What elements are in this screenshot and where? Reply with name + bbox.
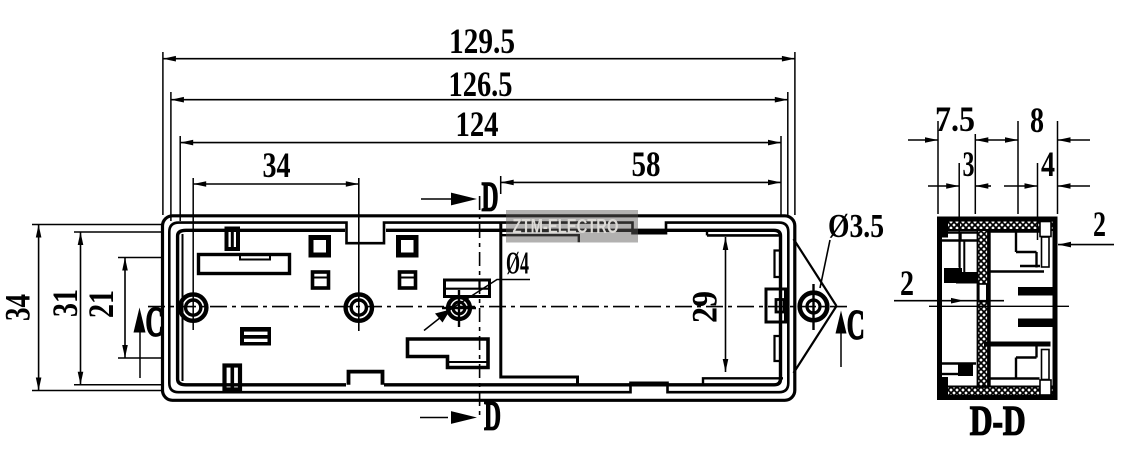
svg-text:7.5: 7.5 (935, 99, 975, 139)
svg-text:ZTM-ELECTRO: ZTM-ELECTRO (513, 216, 619, 238)
svg-text:D: D (484, 394, 501, 440)
svg-text:29: 29 (685, 291, 725, 323)
svg-text:D: D (482, 175, 499, 221)
svg-text:58: 58 (632, 144, 661, 184)
svg-text:124: 124 (456, 104, 499, 144)
svg-text:Ø3.5: Ø3.5 (828, 208, 884, 245)
svg-text:3: 3 (963, 144, 975, 184)
svg-text:129.5: 129.5 (449, 21, 515, 61)
svg-text:31: 31 (45, 289, 85, 317)
svg-text:4: 4 (1041, 144, 1055, 184)
svg-text:D-D: D-D (970, 399, 1026, 445)
svg-text:2: 2 (1093, 204, 1106, 244)
svg-text:C: C (146, 300, 164, 346)
svg-text:Ø4: Ø4 (506, 245, 529, 281)
svg-text:C: C (847, 303, 865, 349)
svg-text:126.5: 126.5 (449, 64, 513, 104)
svg-text:21: 21 (81, 290, 121, 318)
svg-text:2: 2 (900, 263, 914, 303)
svg-text:34: 34 (263, 145, 291, 185)
svg-text:8: 8 (1030, 100, 1044, 140)
svg-text:34: 34 (0, 294, 38, 321)
